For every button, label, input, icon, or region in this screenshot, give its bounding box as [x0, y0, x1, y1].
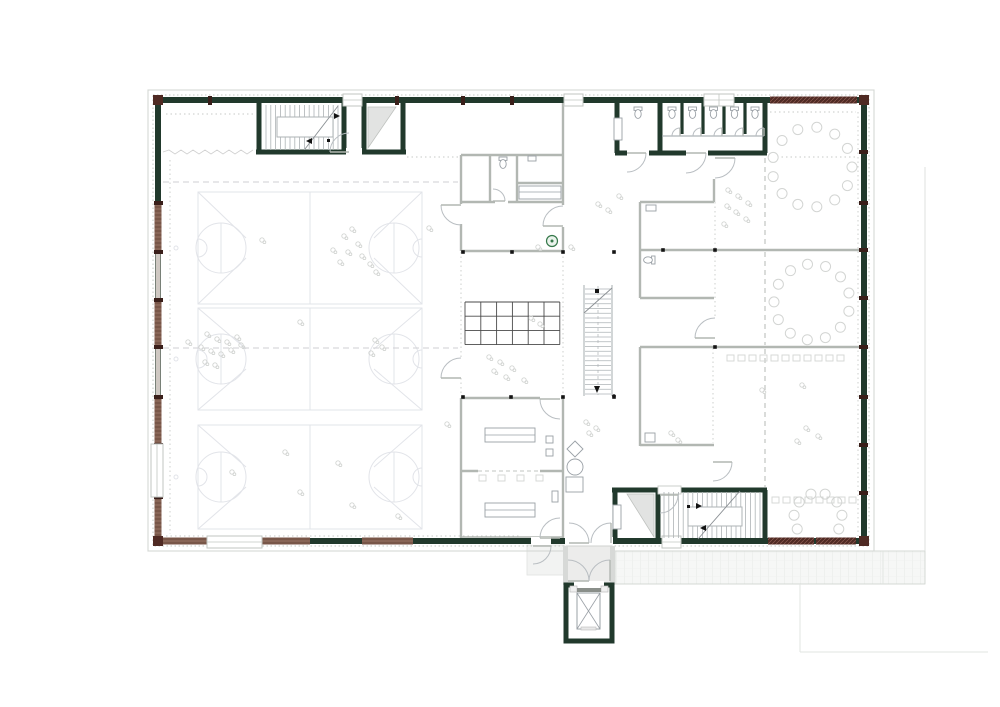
store-nw-ramp [368, 107, 396, 148]
corner-column [859, 95, 869, 105]
toilet-bowl [731, 110, 737, 119]
vestibule-side-wall [610, 546, 615, 585]
green-column-marker-dot [551, 240, 554, 243]
wood-cladding-left [155, 497, 162, 538]
sink-icon [614, 118, 622, 140]
brick-band-bottom [768, 538, 814, 545]
toilet-bowl [752, 110, 758, 119]
column-dot [661, 248, 665, 252]
chair-row-chair [783, 497, 790, 503]
bin [645, 433, 655, 442]
toilet-bowl [710, 110, 716, 119]
toilet-bowl [644, 257, 653, 263]
wall-tick [859, 395, 868, 399]
chair-ring-chair [832, 497, 842, 507]
person-figure [212, 352, 215, 355]
inner-band-line [153, 95, 869, 546]
column-dots [461, 248, 717, 399]
door-arc [540, 518, 560, 538]
court-key-line [374, 258, 422, 304]
wall-tick [461, 96, 465, 105]
column-dot [461, 395, 465, 399]
column-dot [561, 395, 565, 399]
wall-tick [154, 201, 163, 205]
structural-walls [158, 100, 864, 541]
cabinet [552, 491, 558, 502]
person-figure [513, 369, 516, 372]
toilet-icon [731, 107, 739, 118]
court-key-line [374, 487, 422, 529]
sink-icon [646, 205, 656, 211]
person-figure [763, 391, 766, 394]
court-key-line [198, 308, 246, 349]
stool [546, 436, 553, 443]
corner-column [153, 536, 163, 546]
person-figure [263, 241, 266, 244]
chair-row-chair [517, 475, 524, 481]
toilet-bowl [500, 160, 506, 169]
door-arc [672, 128, 680, 136]
column-dot [561, 250, 565, 254]
chair-ring-chair [768, 152, 778, 162]
wood-cladding-left [155, 397, 162, 445]
elevator-jamb [601, 586, 608, 592]
wall-tick [510, 96, 514, 105]
chair-row-chair [727, 355, 734, 361]
person-figure [490, 358, 493, 361]
person-figure [286, 453, 289, 456]
chair-ring-chair [769, 297, 779, 307]
toilet-icon [499, 157, 507, 168]
person-figure [353, 506, 356, 509]
wall-fixture-mark [174, 475, 178, 479]
toilet-icon [668, 107, 676, 118]
person-figure [341, 263, 344, 266]
chair-ring-chair [803, 259, 813, 269]
person-figure [334, 251, 337, 254]
chair-ring-chair [836, 272, 846, 282]
person-figure [737, 213, 740, 216]
sports-hall [163, 150, 458, 529]
column-dot [713, 248, 717, 252]
chair-row-chair [772, 497, 779, 503]
column-dot [461, 250, 465, 254]
chair-row-chair [479, 475, 486, 481]
toilet-bowl [669, 110, 675, 119]
chair-ring-chair [794, 497, 804, 507]
toilet-bowl [689, 110, 695, 119]
person-figure [587, 423, 590, 426]
person-figure [803, 386, 806, 389]
person-figure [599, 205, 602, 208]
toilet-icon [710, 107, 718, 118]
toilet-icon [689, 107, 697, 118]
person-figure [495, 372, 498, 375]
court-key-line [198, 487, 246, 529]
chair-ring-chair [834, 524, 844, 534]
door-arc [693, 128, 701, 136]
column-dot [713, 345, 717, 349]
person-figure [539, 248, 542, 251]
person-figure [572, 248, 575, 251]
column-dot [612, 395, 616, 399]
chair-ring-chair [793, 199, 803, 209]
person-figure [238, 338, 241, 341]
person-figure [729, 191, 732, 194]
court-goal-arc [413, 239, 422, 257]
person-figure [430, 229, 433, 232]
wall-tick [208, 96, 212, 105]
chair-ring-chair [844, 306, 854, 316]
court-key-line [198, 369, 246, 410]
chair-ring-chair [785, 328, 795, 338]
stair-se-opening-sill [658, 486, 681, 494]
stair-landing-dot [595, 289, 599, 293]
chair-row-chair [536, 475, 543, 481]
stair-start-dot [687, 505, 690, 508]
chair-row-chair [782, 355, 789, 361]
person-figure [672, 434, 675, 437]
person-figure [747, 220, 750, 223]
chair-row-chair [498, 475, 505, 481]
elevator-door-gap [574, 581, 604, 588]
chair-ring-chair [821, 262, 831, 272]
chair-row-chair [815, 355, 822, 361]
elevator-jamb [570, 586, 577, 592]
wall-fixture-mark [174, 357, 178, 361]
court-goal-arc [413, 468, 422, 486]
wood-cladding-bottom [262, 538, 310, 545]
toilet-icon [634, 107, 642, 118]
wall-tick [154, 345, 163, 349]
person-figure [202, 348, 205, 351]
chair-row-chair [849, 497, 856, 503]
door-arc [713, 462, 732, 481]
wall-tick [154, 250, 163, 254]
floor-plan-page [0, 0, 1000, 707]
person-figure [359, 245, 362, 248]
person-figure [353, 230, 356, 233]
chair-ring-chair [837, 510, 847, 520]
wall-tick [859, 296, 868, 300]
person-figure [609, 211, 612, 214]
person-figure [206, 363, 209, 366]
column-dot [509, 395, 513, 399]
chair-ring-chair [785, 266, 795, 276]
chair-row-chair [826, 355, 833, 361]
stair-rail [277, 117, 333, 137]
chair-ring-chair [806, 489, 816, 499]
stool [546, 449, 553, 456]
round-table [567, 459, 583, 475]
elevator-door-sill [577, 588, 601, 592]
person-figure [541, 325, 544, 328]
person-figure [232, 351, 235, 354]
person-figure [739, 197, 742, 200]
chair-ring-chair [844, 288, 854, 298]
brick-band-bottom [816, 538, 856, 545]
chair-row-chair [837, 355, 844, 361]
chair-ring-chair [802, 335, 812, 345]
door-arc [735, 128, 743, 136]
wall-tick [154, 298, 163, 302]
person-figure [448, 425, 451, 428]
door-opening-gap [712, 157, 718, 179]
corner-column [859, 536, 869, 546]
wall-tick [859, 345, 868, 349]
chair-ring-chair [789, 510, 799, 520]
person-figure [507, 378, 510, 381]
wall-cladding-accents [153, 95, 869, 546]
chair-ring-chair [773, 279, 783, 289]
wall-tick [395, 96, 399, 105]
people-figures [186, 188, 822, 520]
person-figure [679, 441, 682, 444]
person-figure [349, 253, 352, 256]
chair-row-chair [804, 355, 811, 361]
wood-cladding-bottom [362, 538, 413, 545]
stair-direction-arrow [334, 113, 340, 119]
wall-fixture-mark [174, 246, 178, 250]
court-goal-arc [413, 350, 422, 368]
chair-row-chair [749, 355, 756, 361]
person-figure [597, 429, 600, 432]
person-figure [725, 225, 728, 228]
person-figure [525, 381, 528, 384]
bench-counter [519, 186, 561, 199]
chair-ring-chair [820, 489, 830, 499]
court-key-line [198, 258, 246, 304]
stair-rail [688, 507, 742, 526]
wood-cladding-left [155, 300, 162, 347]
brick-band-top [770, 97, 857, 104]
side-stoop [527, 545, 565, 575]
interior-partition-walls [461, 103, 862, 540]
wall-tick [859, 150, 868, 154]
door-opening-gap [495, 199, 508, 205]
net-curtain-zigzag [163, 150, 253, 154]
toilet-bowl [635, 110, 641, 119]
chair-ring-chair [812, 202, 822, 212]
chair-ring-chair [777, 189, 787, 199]
wood-cladding-bottom [160, 538, 207, 545]
person-figure [372, 354, 375, 357]
wall-tick [859, 201, 868, 205]
chair-ring-chair [793, 125, 803, 135]
person-figure [208, 335, 211, 338]
court-goal-arc [198, 239, 207, 257]
chair-row-chair [760, 355, 767, 361]
court-goal-arc [198, 350, 207, 368]
chair-ring-chair [820, 333, 830, 343]
pale-cladding-left [156, 252, 161, 300]
door-opening-gap [560, 205, 566, 227]
floor-plan-drawing [0, 0, 1000, 707]
chair-row-chair [793, 355, 800, 361]
court-key-line [374, 192, 422, 238]
person-figure [590, 434, 593, 437]
court-key-line [198, 425, 246, 467]
court-key-line [198, 192, 246, 238]
store-se-ramp [627, 494, 654, 537]
person-figure [807, 429, 810, 432]
door-opening-gap [458, 357, 464, 378]
chair-ring-chair [812, 122, 822, 132]
person-figure [728, 207, 731, 210]
toilet-icon [644, 256, 655, 264]
person-figure [363, 257, 366, 260]
chair-ring-chair [792, 524, 802, 534]
person-figure [376, 341, 379, 344]
person-figure [532, 319, 535, 322]
person-figure [399, 517, 402, 520]
chair-ring-chair [830, 195, 840, 205]
wall-tick [154, 395, 163, 399]
chair-ring-chair [842, 181, 852, 191]
chair-ring-chair [830, 129, 840, 139]
person-figure [501, 363, 504, 366]
door-opening-gap [458, 204, 464, 224]
chair-ring-chair [768, 172, 778, 182]
elevator-counterweight [581, 627, 596, 630]
person-figure [189, 343, 192, 346]
stair-start-dot [327, 139, 330, 142]
person-figure [383, 348, 386, 351]
door-opening-gap [540, 395, 561, 401]
door-arc [714, 128, 722, 136]
sink-icon [528, 156, 536, 161]
paving-strip [615, 551, 925, 584]
person-figure [339, 464, 342, 467]
person-figure [216, 366, 219, 369]
person-figure [819, 437, 822, 440]
person-figure [218, 340, 221, 343]
column-dot [612, 250, 616, 254]
person-figure [301, 323, 304, 326]
wall-tick [859, 491, 868, 495]
wood-cladding-left [155, 203, 162, 252]
chair-ring-chair [777, 135, 787, 145]
chair-row-chair [738, 355, 745, 361]
square-table-rotated [567, 441, 583, 457]
court-key-line [374, 308, 422, 349]
wall-tick [859, 248, 868, 252]
person-figure [222, 355, 225, 358]
person-figure [345, 237, 348, 240]
person-figure [620, 197, 623, 200]
corner-column [153, 95, 163, 105]
chair-ring-chair [835, 322, 845, 332]
staircases [266, 105, 760, 539]
toilet-icon [751, 107, 759, 118]
person-figure [371, 265, 374, 268]
person-figure [798, 442, 801, 445]
chair-row-chair [771, 355, 778, 361]
door-opening-gap [712, 317, 718, 339]
court-key-line [374, 369, 422, 410]
vestibule-side-wall [563, 546, 568, 585]
chair-ring-chair [847, 162, 857, 172]
column-dot [510, 250, 514, 254]
court-goal-arc [198, 468, 207, 486]
door-arc [540, 399, 560, 419]
person-figure [749, 204, 752, 207]
sink-icon [613, 505, 621, 529]
person-figure [228, 343, 231, 346]
chair-ring-chair [773, 315, 783, 325]
court-key-line [374, 425, 422, 467]
wall-tick [859, 443, 868, 447]
person-figure [233, 473, 236, 476]
person-figure [301, 493, 304, 496]
windows-and-openings [151, 94, 734, 548]
person-figure [377, 273, 380, 276]
building-perimeter-wall [158, 100, 864, 541]
chair-ring-chair [842, 143, 852, 153]
pale-cladding-left [156, 347, 161, 397]
square-table [566, 477, 583, 492]
